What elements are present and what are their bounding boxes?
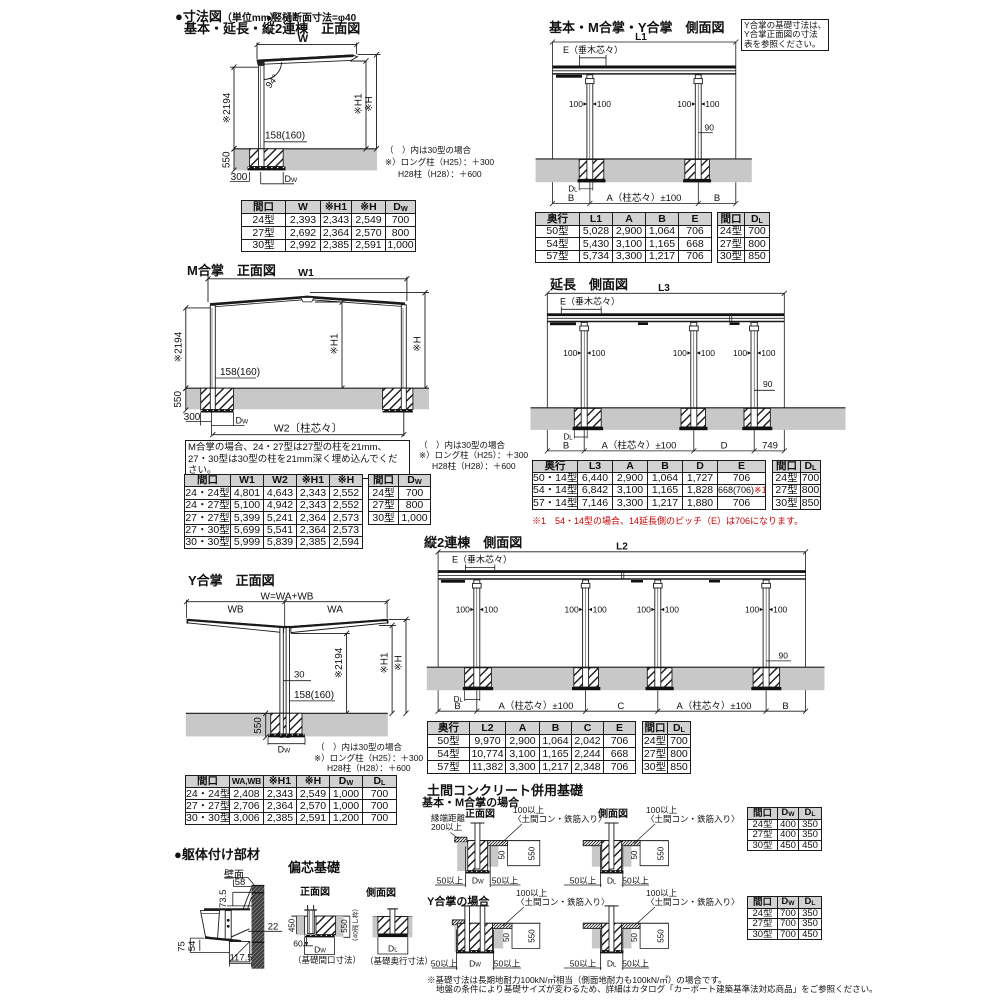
svg-text:※H1: ※H1 xyxy=(379,652,390,674)
svg-text:749: 749 xyxy=(762,441,778,452)
svg-text:E（垂木芯々）: E（垂木芯々） xyxy=(560,296,620,307)
svg-text:50以上: 50以上 xyxy=(570,875,597,885)
svg-text:50: 50 xyxy=(497,850,506,859)
svg-text:WB: WB xyxy=(227,605,243,616)
svg-text:50以上: 50以上 xyxy=(570,958,597,968)
svg-text:90: 90 xyxy=(763,379,773,389)
svg-text:B: B xyxy=(454,701,460,712)
svg-text:B: B xyxy=(568,193,574,204)
svg-text:550: 550 xyxy=(528,929,537,943)
svg-text:100: 100 xyxy=(677,99,691,109)
svg-text:100: 100 xyxy=(673,348,687,358)
svg-text:73.5: 73.5 xyxy=(218,890,229,909)
svg-text:DL: DL xyxy=(607,959,617,969)
svg-text:100: 100 xyxy=(569,99,583,109)
svg-text:DW: DW xyxy=(469,959,481,969)
svg-text:A（柱芯々）±100: A（柱芯々）±100 xyxy=(677,700,752,712)
svg-text:※2194: ※2194 xyxy=(222,92,233,123)
svg-text:L2: L2 xyxy=(616,542,628,553)
svg-text:C: C xyxy=(617,701,624,712)
svg-text:90: 90 xyxy=(705,123,715,133)
svg-text:100: 100 xyxy=(705,99,719,109)
svg-text:50: 50 xyxy=(630,850,639,859)
svg-text:50以上: 50以上 xyxy=(431,958,458,968)
svg-text:W1: W1 xyxy=(298,267,314,279)
svg-text:100: 100 xyxy=(773,605,787,615)
svg-text:B: B xyxy=(782,701,788,712)
svg-text:100: 100 xyxy=(745,605,759,615)
svg-text:DL: DL xyxy=(388,944,398,954)
svg-text:158(160): 158(160) xyxy=(294,690,334,701)
svg-text:E（垂木芯々）: E（垂木芯々） xyxy=(452,554,512,565)
svg-text:50以上: 50以上 xyxy=(622,958,649,968)
svg-text:D: D xyxy=(721,441,728,452)
svg-text:※H: ※H xyxy=(413,336,424,352)
svg-text:※H: ※H xyxy=(393,655,404,671)
svg-text:100: 100 xyxy=(591,348,605,358)
svg-text:550: 550 xyxy=(528,846,537,860)
svg-text:75: 75 xyxy=(177,941,188,952)
svg-text:※H1: ※H1 xyxy=(354,93,365,115)
svg-text:※H: ※H xyxy=(364,96,375,112)
svg-text:30: 30 xyxy=(294,670,305,681)
svg-text:22: 22 xyxy=(268,921,279,932)
svg-text:100: 100 xyxy=(456,605,470,615)
svg-text:A（柱芯々）±100: A（柱芯々）±100 xyxy=(607,192,682,204)
svg-text:550: 550 xyxy=(656,929,665,943)
svg-text:158(160): 158(160) xyxy=(265,131,305,142)
svg-text:50以上: 50以上 xyxy=(492,875,519,885)
svg-text:60: 60 xyxy=(293,939,303,949)
svg-text:100: 100 xyxy=(733,348,747,358)
svg-text:W=WA+WB: W=WA+WB xyxy=(261,592,314,603)
svg-text:※H1: ※H1 xyxy=(330,333,341,355)
svg-text:100: 100 xyxy=(665,605,679,615)
svg-text:117.5: 117.5 xyxy=(229,952,252,963)
svg-text:550: 550 xyxy=(656,846,665,860)
svg-text:※2194: ※2194 xyxy=(334,647,345,678)
svg-text:550: 550 xyxy=(222,151,233,168)
svg-text:100: 100 xyxy=(563,348,577,358)
svg-text:E（垂木芯々）: E（垂木芯々） xyxy=(563,44,623,55)
svg-text:50以上: 50以上 xyxy=(494,958,521,968)
svg-text:WA: WA xyxy=(327,605,343,616)
svg-text:300: 300 xyxy=(231,172,248,183)
svg-text:550: 550 xyxy=(253,717,264,734)
svg-text:100: 100 xyxy=(637,605,651,615)
svg-text:50以上: 50以上 xyxy=(622,875,649,885)
svg-text:100: 100 xyxy=(597,99,611,109)
svg-text:550: 550 xyxy=(173,391,184,408)
svg-text:A（柱芯々）±100: A（柱芯々）±100 xyxy=(602,440,677,452)
svg-text:100: 100 xyxy=(565,605,579,615)
svg-text:94°: 94° xyxy=(264,72,282,90)
svg-text:DW: DW xyxy=(285,174,299,184)
svg-text:300: 300 xyxy=(184,412,201,423)
svg-text:B: B xyxy=(563,441,569,452)
svg-text:B: B xyxy=(714,193,720,204)
svg-text:A（柱芯々）±100: A（柱芯々）±100 xyxy=(499,700,574,712)
svg-text:450: 450 xyxy=(288,918,297,932)
svg-text:W2〔柱芯々〕: W2〔柱芯々〕 xyxy=(274,422,342,435)
svg-text:90: 90 xyxy=(779,651,789,661)
svg-text:L3: L3 xyxy=(658,283,670,294)
svg-text:50: 50 xyxy=(630,933,639,942)
svg-text:100: 100 xyxy=(701,348,715,358)
svg-text:54: 54 xyxy=(187,941,198,952)
svg-text:※2194: ※2194 xyxy=(173,331,184,362)
svg-text:DW: DW xyxy=(236,416,250,426)
svg-text:DW: DW xyxy=(472,876,484,886)
svg-text:100: 100 xyxy=(593,605,607,615)
svg-text:（40残し枠）: （40残し枠） xyxy=(351,905,360,945)
svg-text:158(160): 158(160) xyxy=(220,367,260,378)
svg-text:50以上: 50以上 xyxy=(437,875,464,885)
svg-text:100: 100 xyxy=(761,348,775,358)
svg-text:DL: DL xyxy=(607,876,617,886)
svg-text:100: 100 xyxy=(484,605,498,615)
svg-text:50: 50 xyxy=(502,933,511,942)
svg-text:DW: DW xyxy=(314,944,326,954)
svg-text:DW: DW xyxy=(278,745,292,755)
svg-text:550: 550 xyxy=(340,919,349,933)
